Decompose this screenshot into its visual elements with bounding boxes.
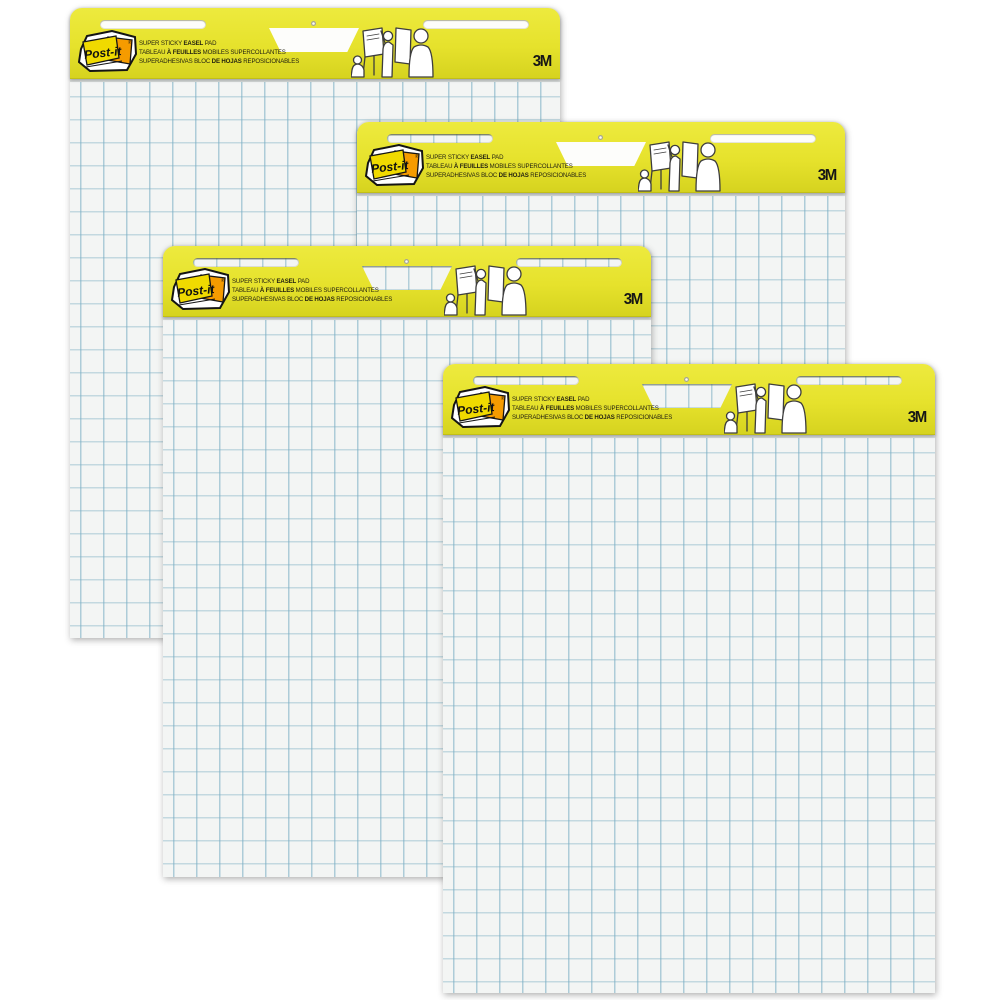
handle-slot-right	[710, 134, 816, 143]
pad-header: Post-it ® SUPER STICKY EASEL PAD TABLEAU…	[70, 8, 560, 79]
easel-people-illustration	[444, 260, 530, 316]
handle-slot-left	[473, 376, 579, 385]
hang-hole	[311, 21, 316, 26]
product-title-block: SUPER STICKY EASEL PAD TABLEAU À FEUILLE…	[426, 154, 586, 180]
3m-logo: 3M	[533, 52, 551, 70]
title-line-es: SUPERADHESIVAS BLOC DE HOJAS REPOSICIONA…	[426, 172, 586, 181]
product-title-block: SUPER STICKY EASEL PAD TABLEAU À FEUILLE…	[512, 396, 672, 422]
pad-header: Post-it ® SUPER STICKY EASEL PAD TABLEAU…	[357, 122, 845, 193]
postit-logo-icon: Post-it ®	[365, 144, 425, 186]
product-photo: Post-it ® SUPER STICKY EASEL PAD TABLEAU…	[0, 0, 1000, 1000]
handle-slot-left	[387, 134, 493, 143]
pad-header: Post-it ® SUPER STICKY EASEL PAD TABLEAU…	[443, 364, 935, 435]
3m-logo: 3M	[624, 290, 642, 308]
product-title-block: SUPER STICKY EASEL PAD TABLEAU À FEUILLE…	[139, 40, 299, 66]
easel-pad-4: Post-it ® SUPER STICKY EASEL PAD TABLEAU…	[443, 364, 935, 993]
handle-slot-right	[516, 258, 622, 267]
product-title-block: SUPER STICKY EASEL PAD TABLEAU À FEUILLE…	[232, 278, 392, 304]
pad-header: Post-it ® SUPER STICKY EASEL PAD TABLEAU…	[163, 246, 651, 317]
easel-people-illustration	[638, 136, 724, 192]
title-line-es: SUPERADHESIVAS BLOC DE HOJAS REPOSICIONA…	[512, 414, 672, 423]
title-line-en: SUPER STICKY EASEL PAD	[426, 154, 586, 163]
hang-hole	[404, 259, 409, 264]
grid-paper	[443, 434, 935, 993]
postit-logo-icon: Post-it ®	[78, 30, 138, 72]
3m-logo: 3M	[908, 408, 926, 426]
title-line-es: SUPERADHESIVAS BLOC DE HOJAS REPOSICIONA…	[232, 296, 392, 305]
title-line-fr: TABLEAU À FEUILLES MOBILES SUPERCOLLANTE…	[232, 287, 392, 296]
handle-slot-right	[423, 20, 529, 29]
title-line-en: SUPER STICKY EASEL PAD	[232, 278, 392, 287]
hang-hole	[684, 377, 689, 382]
handle-slot-left	[193, 258, 299, 267]
postit-logo-icon: Post-it ®	[451, 386, 511, 428]
title-line-en: SUPER STICKY EASEL PAD	[139, 40, 299, 49]
easel-people-illustration	[724, 378, 810, 434]
3m-logo: 3M	[818, 166, 836, 184]
title-line-es: SUPERADHESIVAS BLOC DE HOJAS REPOSICIONA…	[139, 58, 299, 67]
postit-logo-icon: Post-it ®	[171, 268, 231, 310]
title-line-fr: TABLEAU À FEUILLES MOBILES SUPERCOLLANTE…	[426, 163, 586, 172]
easel-people-illustration	[351, 22, 437, 78]
handle-slot-right	[796, 376, 902, 385]
handle-slot-left	[100, 20, 206, 29]
title-line-fr: TABLEAU À FEUILLES MOBILES SUPERCOLLANTE…	[139, 49, 299, 58]
hang-hole	[598, 135, 603, 140]
title-line-fr: TABLEAU À FEUILLES MOBILES SUPERCOLLANTE…	[512, 405, 672, 414]
title-line-en: SUPER STICKY EASEL PAD	[512, 396, 672, 405]
